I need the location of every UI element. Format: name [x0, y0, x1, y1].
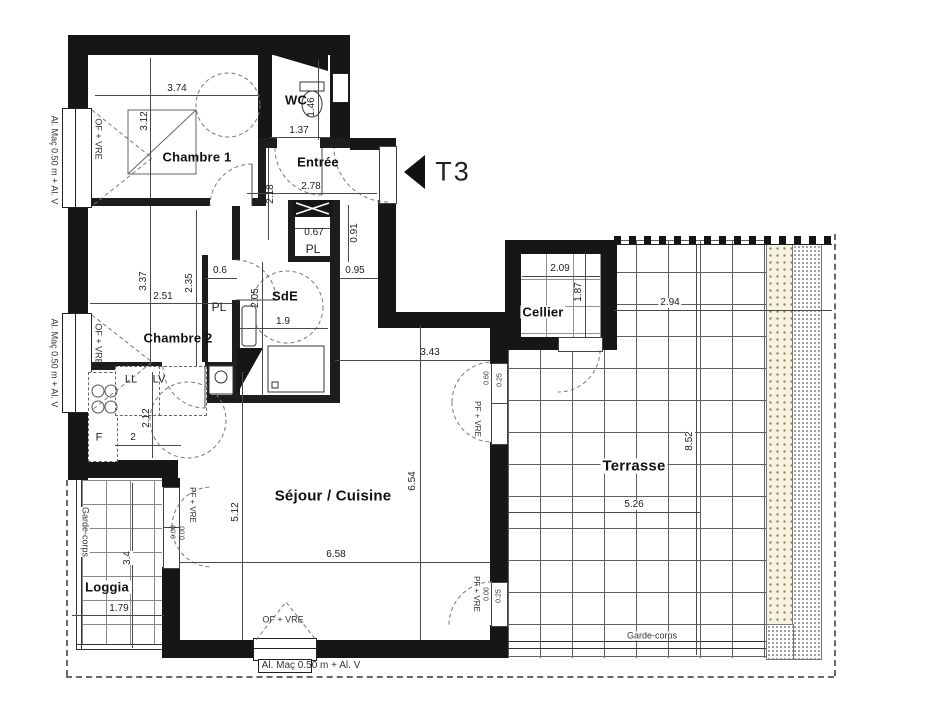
dim-line [696, 245, 697, 655]
dim-label: 1.87 [574, 282, 584, 301]
floor-plan: Chambre 1 WC Entrée PL SdE Chambre 2 PL … [0, 0, 940, 705]
dim-label: 3.4 [123, 551, 133, 565]
dim-label: 1.79 [107, 604, 130, 614]
dim-label: 8.52 [685, 431, 695, 450]
room-label-cellier: Cellier [520, 306, 565, 319]
door-annotation: PF + VRE [188, 487, 196, 523]
shower-drain [272, 382, 278, 388]
garde-corps-label-loggia: Garde-corps [81, 507, 90, 557]
window-annotation: OF + VRE [262, 616, 303, 625]
dim-label: 3.37 [139, 271, 149, 290]
dim-line [95, 95, 260, 96]
dim-label: 0.6 [213, 266, 227, 276]
dim-label: 2.09 [548, 264, 571, 274]
door-annotation: PF + VRE [472, 576, 480, 612]
dim-label: 2.51 [153, 292, 172, 302]
dim-label: 5.12 [231, 502, 241, 521]
dim-line [522, 276, 600, 277]
dim-line [240, 328, 328, 329]
room-label-pl-chambre2: PL [212, 301, 227, 313]
dim-label: 2.12 [142, 408, 152, 427]
dim-line [335, 360, 490, 361]
sink-bowl [215, 371, 227, 383]
dim-label: 2.94 [658, 298, 681, 308]
room-label-sde: SdE [272, 290, 298, 303]
dim-label: 2.05 [251, 288, 261, 307]
dim-label: 1.9 [276, 317, 290, 327]
dim-line [508, 512, 700, 513]
room-label-chambre2: Chambre 2 [144, 332, 213, 345]
room-label-entree: Entrée [297, 156, 339, 169]
room-label-wc: WC [285, 94, 307, 107]
hob-burner [92, 401, 104, 413]
room-label-loggia: Loggia [83, 581, 131, 594]
room-label-chambre1: Chambre 1 [163, 151, 232, 164]
unit-type-label: T3 [435, 159, 471, 186]
wall-annotation: Al. Maç 0.50 m + Al. V [50, 116, 59, 205]
dim-label: 2.78 [301, 182, 320, 192]
dim-line [318, 60, 319, 140]
dim-line [72, 615, 164, 616]
dim-label: 6.58 [326, 550, 345, 560]
door-dim: 0.00 [180, 526, 187, 540]
dim-label: 1.37 [289, 126, 308, 136]
door-annotation: PF + VRE [473, 401, 481, 437]
dim-label: 6.54 [408, 471, 418, 490]
door-dim: 0.00 [171, 525, 178, 539]
dim-line [270, 137, 330, 138]
dim-line [614, 310, 832, 311]
entrance-arrow-icon [404, 155, 425, 189]
window-annotation: OF + VRE [94, 118, 103, 159]
dim-label: 1.46 [307, 97, 317, 116]
dim-line [115, 445, 181, 446]
dim-label: 0.67 [304, 228, 323, 238]
dim-label: 2 [130, 433, 136, 443]
window-annotation: OF + VRE [94, 323, 103, 364]
dim-label: 3.74 [167, 84, 186, 94]
dim-label: 2.18 [266, 184, 276, 203]
wall-annotation: Al. Maç 0.50 m + Al. V [50, 319, 59, 408]
dim-line [150, 58, 151, 198]
dim-label: 0.95 [345, 266, 364, 276]
toilet-tank [300, 82, 324, 91]
room-label-sejour: Séjour / Cuisine [275, 489, 392, 504]
dim-label: 0.91 [350, 223, 360, 242]
door-dim: 0.60 [484, 371, 491, 385]
hob-burner [105, 401, 117, 413]
dim-line [205, 278, 237, 279]
wall-annotation: Al. Maç 0.50 m + Al. V [262, 661, 361, 671]
door-dim: 0.00 [484, 587, 491, 601]
dim-label: 3.43 [420, 348, 439, 358]
appliance-label-fridge: F [96, 433, 103, 444]
dim-label: 5.26 [622, 500, 645, 510]
dim-line [262, 262, 263, 396]
appliance-label-lv: LV [153, 375, 166, 386]
dim-line [340, 278, 378, 279]
door-dim: 0.25 [497, 373, 504, 387]
hob-burner [92, 385, 104, 397]
wc-duct-triangle [270, 54, 328, 71]
dim-line [132, 483, 133, 648]
room-label-pl-entree: PL [306, 243, 321, 255]
washbasin [242, 306, 256, 346]
plan-symbols [0, 0, 940, 705]
dim-line [585, 253, 586, 337]
dim-line [420, 325, 421, 640]
dim-line [242, 372, 243, 640]
appliance-label-ll: LL [125, 375, 137, 386]
room-label-terrasse: Terrasse [600, 459, 667, 474]
dim-label: 3.12 [140, 111, 150, 130]
shaft-triangle [237, 348, 263, 394]
garde-corps-label-terrasse: Garde-corps [625, 632, 679, 641]
dim-label: 2.35 [185, 273, 195, 292]
door-dim: 0.25 [496, 589, 503, 603]
dim-line [180, 562, 490, 563]
